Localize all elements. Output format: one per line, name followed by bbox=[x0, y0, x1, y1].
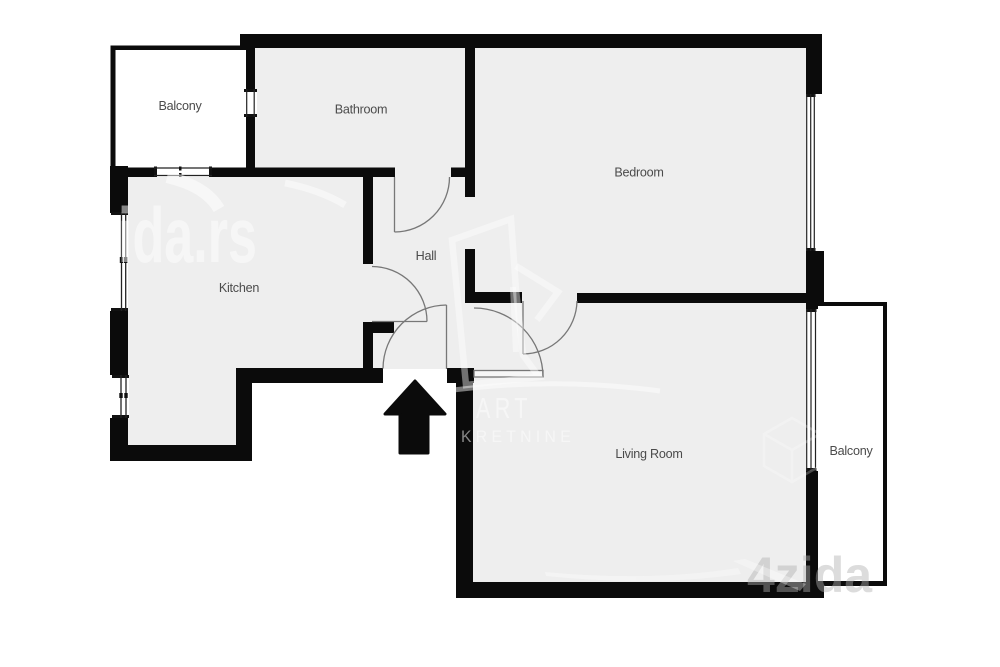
svg-text:Hall: Hall bbox=[416, 249, 437, 263]
svg-text:Bathroom: Bathroom bbox=[335, 103, 388, 117]
svg-text:Kitchen: Kitchen bbox=[219, 281, 260, 295]
svg-text:KRETNINE: KRETNINE bbox=[461, 428, 575, 446]
svg-text:Living Room: Living Room bbox=[615, 447, 682, 461]
svg-text:Bedroom: Bedroom bbox=[614, 166, 663, 180]
svg-text:Balcony: Balcony bbox=[829, 444, 873, 458]
svg-text:Balcony: Balcony bbox=[158, 99, 202, 113]
svg-text:ART: ART bbox=[476, 393, 532, 425]
svg-text:ida.rs: ida.rs bbox=[118, 191, 257, 279]
